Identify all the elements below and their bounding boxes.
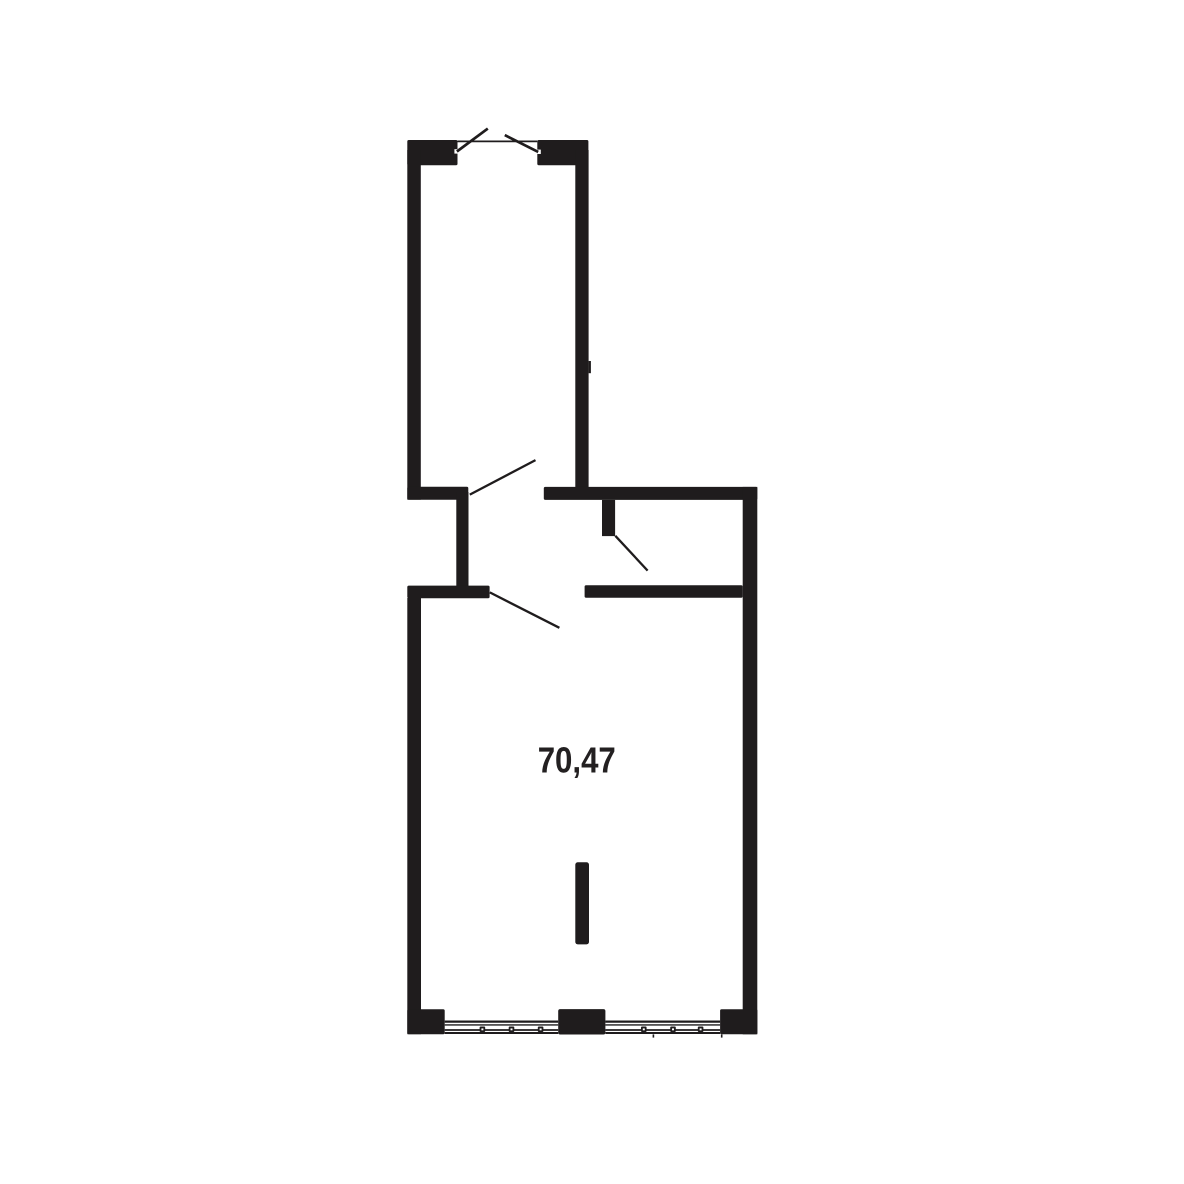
svg-text:70,47: 70,47 bbox=[538, 740, 616, 781]
